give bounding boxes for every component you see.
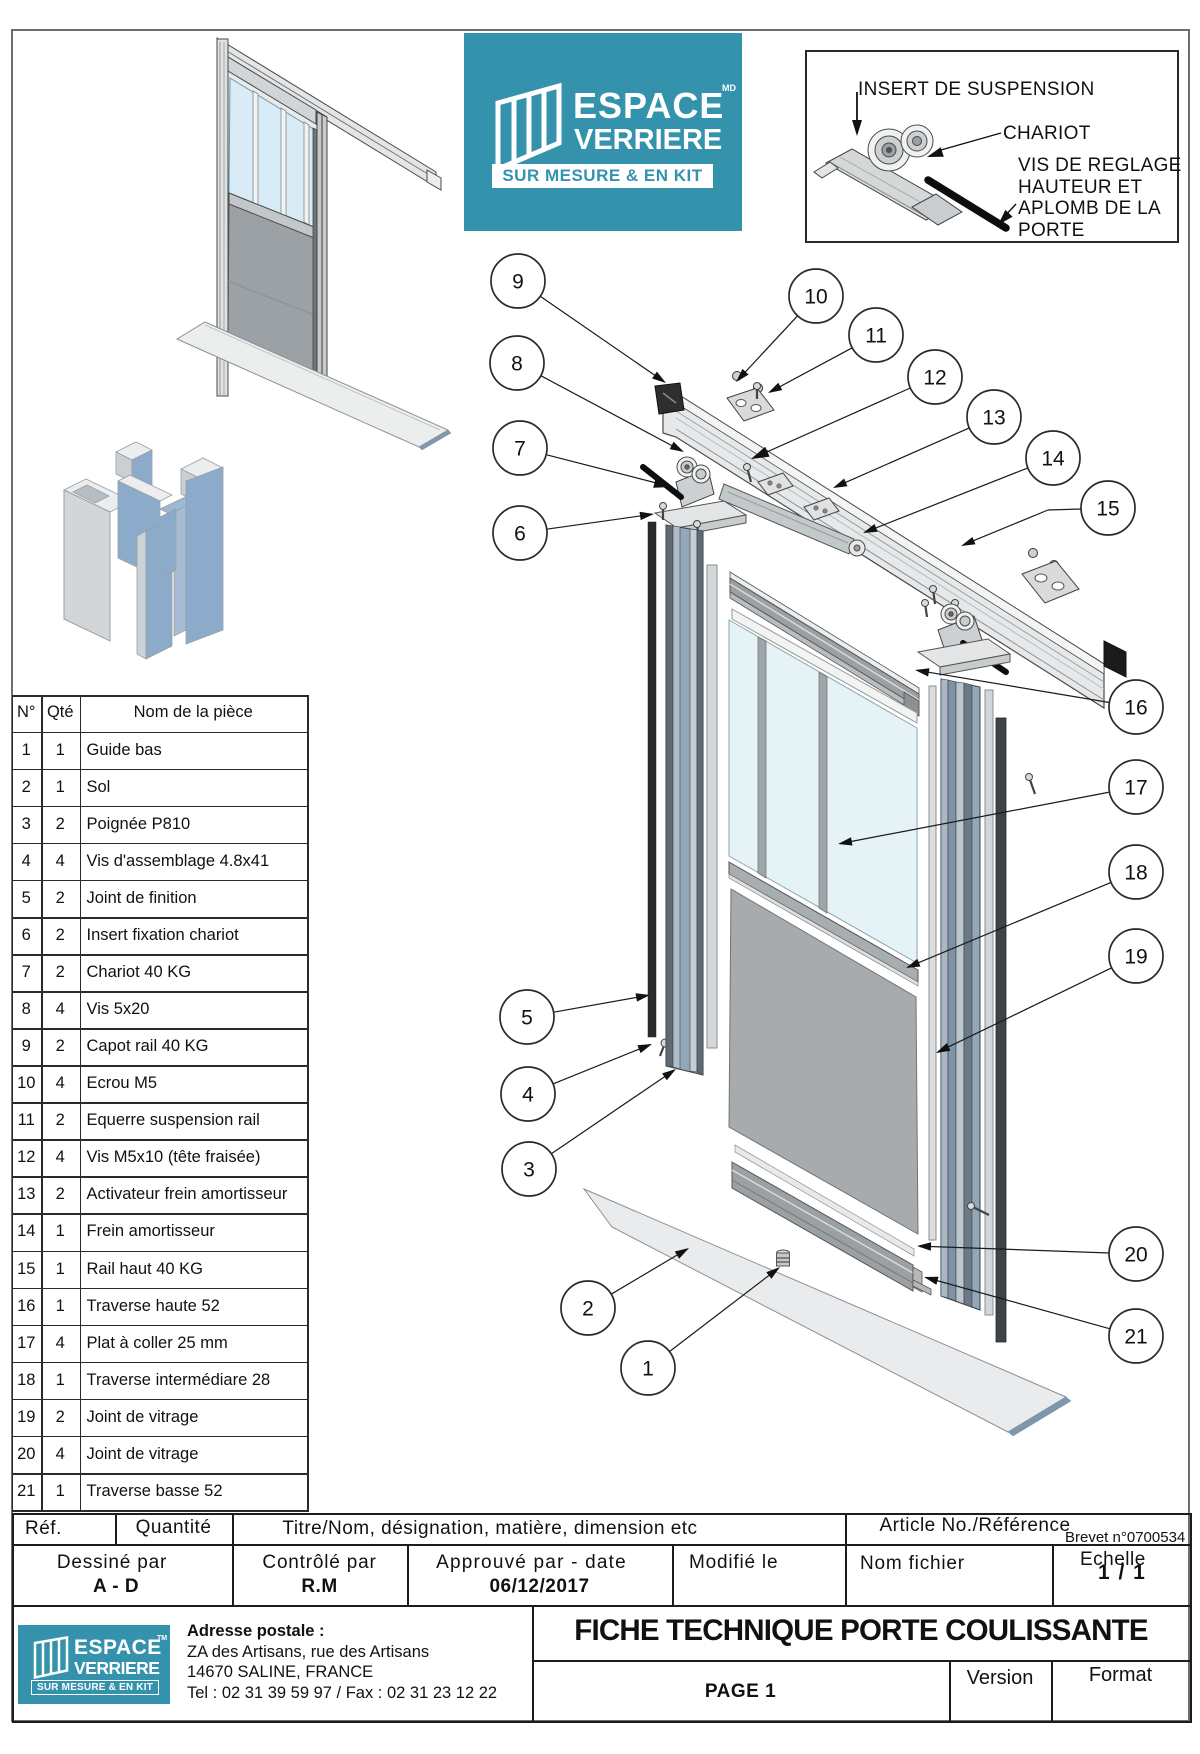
svg-text:3: 3 [523, 1159, 535, 1182]
svg-text:17: 17 [1124, 777, 1147, 800]
svg-text:16: 16 [1124, 697, 1147, 720]
svg-text:20: 20 [1124, 1244, 1147, 1267]
svg-text:12: 12 [923, 367, 946, 390]
svg-text:5: 5 [521, 1007, 533, 1030]
svg-text:13: 13 [982, 407, 1005, 430]
svg-text:7: 7 [514, 438, 526, 461]
svg-text:18: 18 [1124, 862, 1147, 885]
svg-text:8: 8 [511, 353, 523, 376]
svg-text:2: 2 [582, 1298, 594, 1321]
svg-text:21: 21 [1124, 1326, 1147, 1349]
svg-text:19: 19 [1124, 946, 1147, 969]
svg-text:9: 9 [512, 271, 524, 294]
svg-text:1: 1 [642, 1358, 654, 1381]
svg-text:6: 6 [514, 523, 526, 546]
svg-text:10: 10 [804, 286, 827, 309]
svg-text:11: 11 [865, 325, 887, 348]
svg-text:14: 14 [1041, 448, 1065, 471]
svg-text:4: 4 [522, 1084, 534, 1107]
svg-text:15: 15 [1096, 498, 1119, 521]
